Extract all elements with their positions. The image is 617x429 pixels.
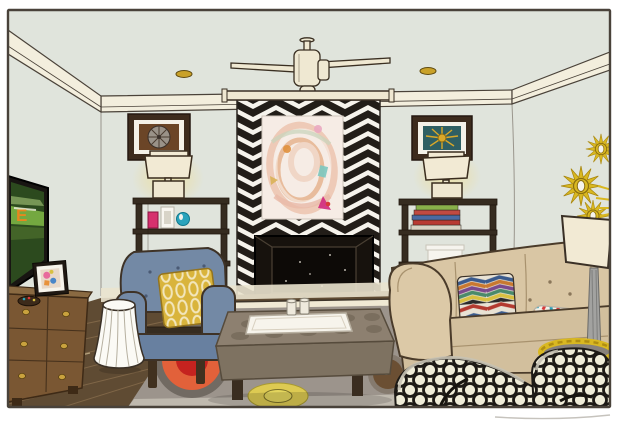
floor-lamp-shade [562, 216, 612, 268]
dresser-leg [68, 386, 78, 394]
pencil-stray-line [495, 415, 610, 419]
tv-channel-letter: E [16, 206, 27, 225]
lamp-shade [145, 156, 192, 178]
book [411, 225, 461, 230]
book [416, 205, 458, 210]
lamp-shade [423, 156, 470, 180]
book [414, 210, 460, 215]
recessed-light-left [176, 71, 192, 78]
shelf-top [133, 198, 229, 204]
bowl-on-dresser [18, 296, 40, 306]
fan-motor [294, 50, 320, 86]
shelf-top [399, 199, 497, 205]
pink-box [148, 212, 158, 228]
small-frame-on-dresser [33, 261, 69, 297]
dresser-leg [12, 398, 22, 406]
teal-disc [177, 213, 190, 226]
recessed-light-right [420, 68, 436, 75]
sofa-arm [389, 263, 452, 360]
book [412, 215, 460, 220]
ottoman-front [216, 341, 394, 380]
living-room-illustration: E [0, 0, 617, 429]
shelf-board [133, 229, 229, 234]
book-stack [411, 205, 461, 230]
book [413, 220, 460, 225]
lamp-base [153, 181, 184, 198]
lamp-base [432, 183, 462, 198]
shelf-board [399, 230, 497, 235]
tapestry-rod [225, 91, 391, 100]
abstract-painting [262, 116, 343, 219]
